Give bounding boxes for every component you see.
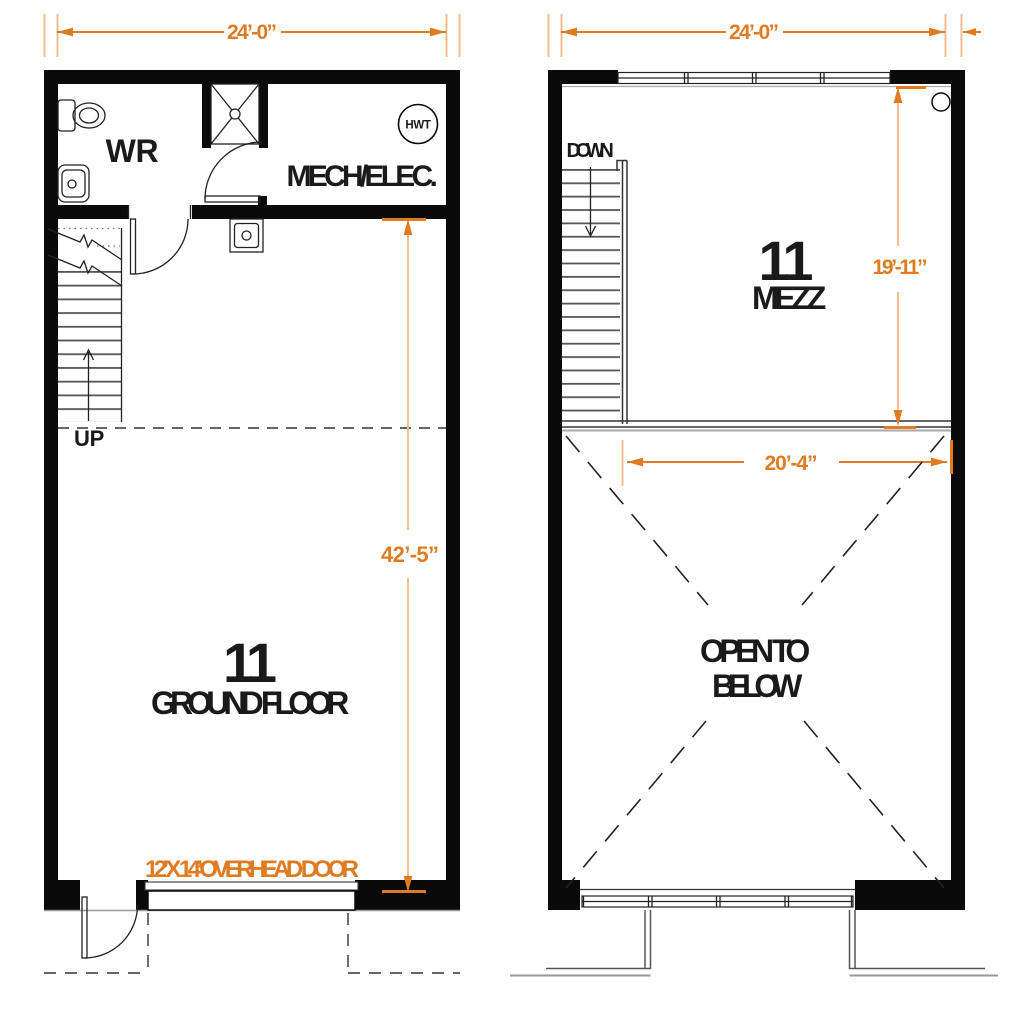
dim-arrow-down-icon xyxy=(894,410,903,426)
stairs-up: UP xyxy=(48,228,122,451)
stair-break-line xyxy=(48,229,122,260)
open-width-label: 20’-4” xyxy=(765,452,818,475)
open-to-below-label-line1: OPEN TO xyxy=(700,633,810,669)
ground-floor-plan: 24’-0” xyxy=(44,14,460,973)
mezzanine-width-dimension: 24’-0” xyxy=(549,14,982,57)
ground-floor-width-label: 24’-0” xyxy=(227,21,277,44)
ground-floor-depth-dimension: 42’-5” xyxy=(381,219,439,892)
mezzanine-plan: 24’-0” xyxy=(510,14,998,976)
dim-arrow-small-icon xyxy=(963,28,977,36)
mezzanine-width-label: 24’-0” xyxy=(729,21,779,44)
open-to-below-area: OPEN TO BELOW xyxy=(566,436,944,888)
dim-arrow-right-icon xyxy=(929,28,945,37)
toilet-icon xyxy=(58,100,105,131)
mezz-depth-dimension: 19’-11” xyxy=(873,87,928,428)
up-label: UP xyxy=(74,426,104,451)
utility-sink-icon xyxy=(230,219,263,252)
mezz-floor-edge xyxy=(562,421,951,431)
mech-elec-label: MECH/ELEC. xyxy=(287,160,438,193)
ground-floor-depth-label: 42’-5” xyxy=(381,542,439,567)
ground-floor-level-label: GROUND FLOOR xyxy=(151,685,349,721)
entry-door-swing xyxy=(82,897,138,958)
hwt-label: HWT xyxy=(405,120,431,132)
mech-door-swing xyxy=(205,142,262,202)
dim-arrow-right-icon xyxy=(430,28,446,37)
open-width-dimension: 20’-4” xyxy=(623,440,952,486)
hwt-tank-icon: HWT xyxy=(399,105,438,144)
ground-floor-width-dimension: 24’-0” xyxy=(45,14,460,57)
dim-arrow-left-icon xyxy=(627,458,643,467)
mezz-depth-label: 19’-11” xyxy=(873,256,928,279)
overhead-door xyxy=(145,882,358,910)
canopy-dashed-outline xyxy=(44,913,460,973)
overhead-door-label: 12’ X 14’ OVERHEAD DOOR xyxy=(145,856,359,883)
dim-arrow-up-icon xyxy=(404,219,413,235)
shower-icon xyxy=(211,84,259,144)
sink-icon xyxy=(58,165,89,202)
window-bottom xyxy=(580,890,855,908)
wr-door-swing xyxy=(131,219,189,274)
dim-arrow-left-icon xyxy=(561,28,577,37)
canopy-outline xyxy=(510,910,998,976)
down-label: DOWN xyxy=(567,140,614,162)
mezzanine-level-label: MEZZ xyxy=(752,280,826,316)
dim-arrow-up-icon xyxy=(894,87,903,103)
open-to-below-label-line2: BELOW xyxy=(712,668,803,704)
floor-plan-drawing: 24’-0” xyxy=(0,0,1013,1013)
stairs-down: DOWN xyxy=(562,140,627,424)
wr-label: WR xyxy=(106,133,159,169)
dim-arrow-right-icon xyxy=(931,458,947,467)
column-icon xyxy=(932,93,950,111)
dim-arrow-left-icon xyxy=(57,28,73,37)
floor-plan-canvas: 24’-0” xyxy=(0,0,1013,1013)
